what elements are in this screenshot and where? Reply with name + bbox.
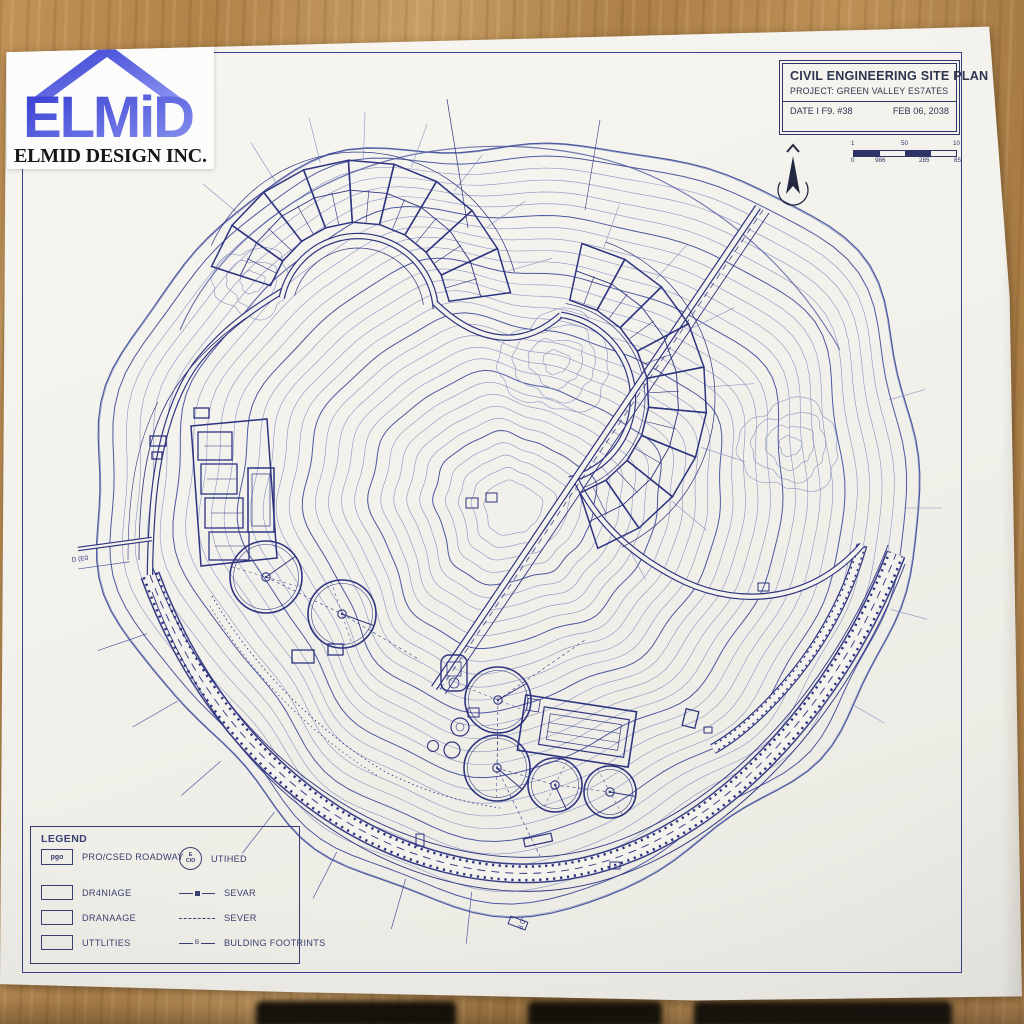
scale-label: 10 — [953, 141, 960, 147]
date-value: FEB 06, 2038 — [893, 106, 949, 116]
legend-item-drainage-2: DRANAAGE — [82, 913, 136, 923]
title-block: CIVIL ENGINEERING SITE PLAN PROJECT: GRE… — [779, 60, 960, 135]
building-footprint-symbol: B — [179, 940, 215, 947]
scale-label: 0 — [851, 158, 855, 164]
legend-box: LEGEND pgo PRO/CSED ROADWAY E CIO UTIHED… — [30, 826, 300, 964]
scale-bar-segments — [853, 150, 957, 157]
photo-of-site-plan: D (E08 0° CIVIL ENGINEERING SITE PLAN PR… — [0, 0, 1024, 1024]
plan-title: CIVIL ENGINEERING SITE PLAN — [790, 69, 949, 83]
legend-item-sever: SEVER — [224, 913, 257, 923]
svg-text:D (E0: D (E0 — [71, 555, 89, 564]
legend-item-footprints: BULDING FOOTRINTS — [224, 938, 326, 948]
company-logo: ELMiD ELMID DESIGN INC. — [7, 33, 214, 169]
logo-company-text: ELMID DESIGN INC. — [14, 145, 207, 167]
scale-label: 1 — [851, 141, 855, 147]
drainage-symbol — [41, 885, 73, 900]
north-arrow-icon — [773, 142, 813, 211]
scale-label: 986 — [875, 158, 886, 164]
legend-item-utility: UTIHED — [211, 854, 247, 864]
date-label: DATE I F9. #38 — [790, 106, 893, 116]
utility-circle-symbol: E CIO — [179, 847, 202, 870]
scale-bar: 1 50 10 0 986 285 85 — [853, 150, 957, 157]
logo-brand-text: ELMiD — [23, 85, 195, 150]
scale-label: 50 — [901, 141, 908, 147]
scale-label: 285 — [919, 158, 930, 164]
paper-sheet: D (E08 0° CIVIL ENGINEERING SITE PLAN PR… — [0, 0, 1024, 1024]
svg-text:8 0°: 8 0° — [516, 916, 528, 931]
project-name: PROJECT: GREEN VALLEY ES7ATES — [790, 86, 949, 96]
legend-item-utilities: UTTLITIES — [82, 938, 131, 948]
legend-item-sevar: SEVAR — [224, 888, 256, 898]
title-block-divider — [783, 101, 956, 102]
sewer-line-symbol — [179, 891, 215, 896]
scale-label: 85 — [954, 158, 961, 164]
drainage2-symbol — [41, 910, 73, 925]
legend-item-drainage-1: DR4NIAGE — [82, 888, 131, 898]
legend-title: LEGEND — [41, 833, 87, 845]
utilities-symbol — [41, 935, 73, 950]
proposed-roadway-symbol: pgo — [41, 849, 73, 865]
sewer-dashed-symbol — [179, 918, 215, 919]
legend-item-roadway: PRO/CSED ROADWAY — [82, 852, 184, 862]
